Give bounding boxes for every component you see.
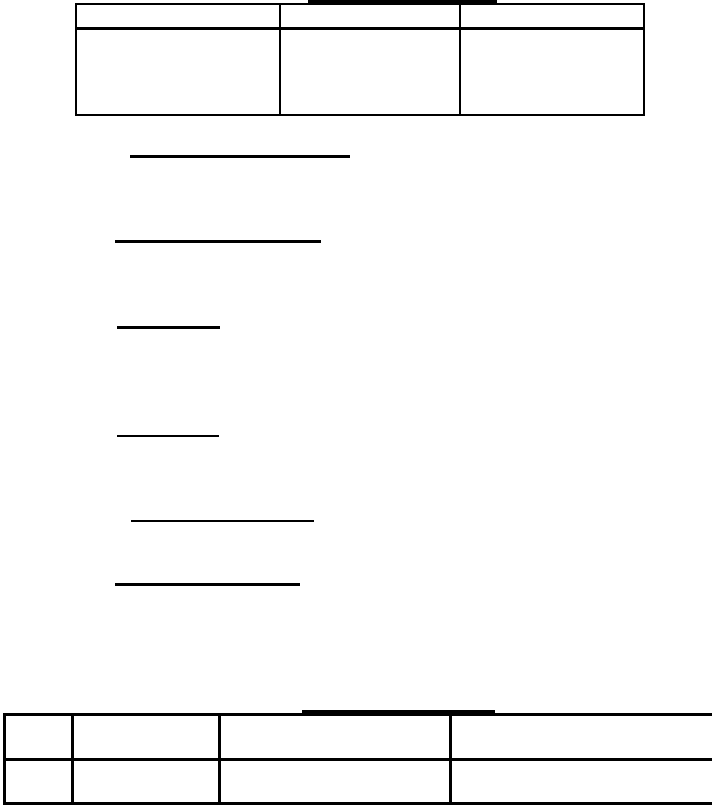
top-table — [75, 3, 645, 116]
top-table-cell — [280, 28, 460, 115]
bottom-table-cell — [5, 760, 73, 804]
top-table-cell — [460, 28, 644, 115]
bottom-table-body-row — [5, 760, 712, 804]
blank-field-underline-1 — [130, 155, 350, 158]
bottom-table-header-cell — [220, 715, 451, 760]
top-table-header-cell — [460, 4, 644, 28]
bottom-table-cell — [451, 760, 712, 804]
bottom-table-header-row — [5, 715, 712, 760]
blank-field-underline-4 — [117, 435, 219, 437]
top-table-cell — [76, 28, 280, 115]
bottom-table-cell — [220, 760, 451, 804]
top-table-body-row — [76, 28, 644, 115]
blank-field-underline-3 — [117, 326, 220, 329]
bottom-table — [3, 713, 712, 805]
bottom-table-header-cell — [5, 715, 73, 760]
top-table-header-cell — [280, 4, 460, 28]
document-page — [0, 0, 712, 806]
top-table-header-cell — [76, 4, 280, 28]
blank-field-underline-6 — [115, 583, 300, 586]
top-table-header-row — [76, 4, 644, 28]
blank-field-underline-5 — [131, 520, 314, 522]
blank-field-underline-2 — [115, 240, 321, 243]
bottom-table-header-cell — [451, 715, 712, 760]
bottom-table-cell — [73, 760, 220, 804]
bottom-table-header-cell — [73, 715, 220, 760]
